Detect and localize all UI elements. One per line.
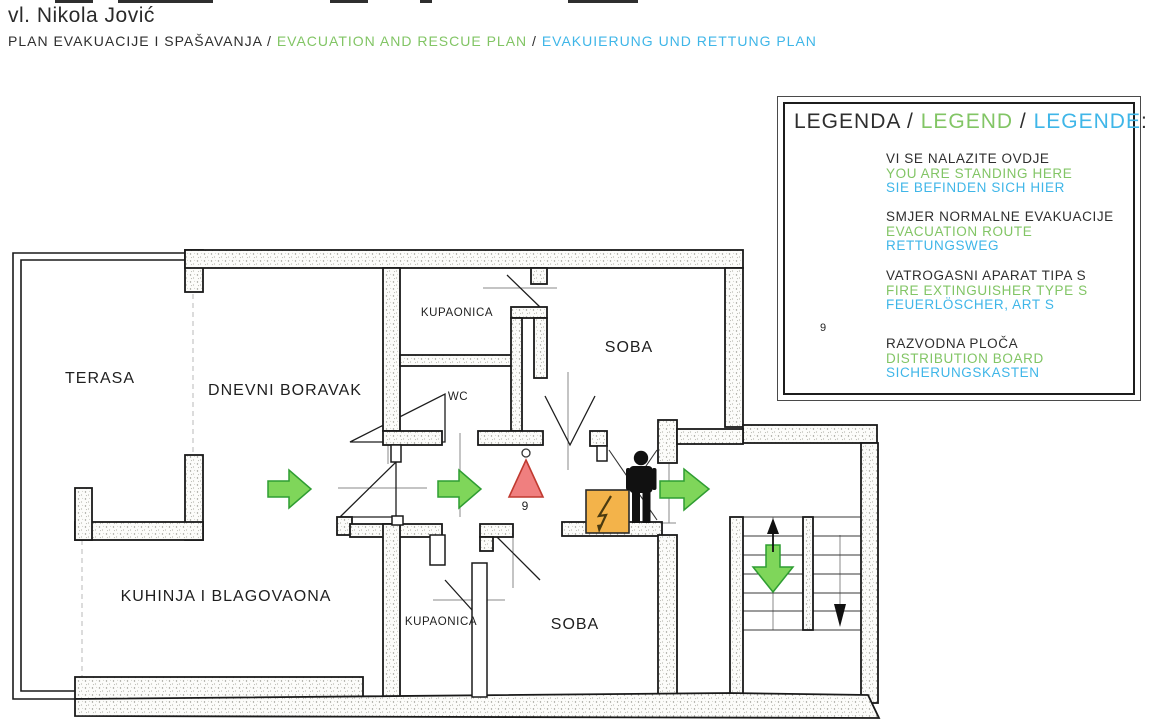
legend-item-de: RETTUNGSWEG (886, 239, 1136, 254)
door-swing-living (340, 462, 396, 517)
legend-item-de: SIE BEFINDEN SICH HIER (886, 181, 1136, 196)
evacuation-arrow-1 (268, 470, 311, 508)
door-swings (340, 275, 595, 620)
legend-item-en: DISTRIBUTION BOARD (886, 352, 1136, 367)
legend-box: LEGENDA / LEGEND / LEGENDE: VI SE NALAZI… (777, 96, 1141, 401)
room-label-kupaonica-bottom: KUPAONICA (405, 616, 477, 628)
legend-item-en: EVACUATION ROUTE (886, 225, 1136, 240)
evacuation-plan-page: vl. Nikola Jović PLAN EVAKUACIJE I SPAŠA… (0, 0, 1152, 720)
room-label-dnevni-boravak: DNEVNI BORAVAK (208, 382, 362, 400)
extinguisher-number: 9 (522, 499, 529, 513)
legend-extinguisher-number: 9 (820, 322, 826, 334)
legend-item-hr: VATROGASNI APARAT TIPA S (886, 269, 1136, 284)
legend-title-en: LEGEND (921, 110, 1013, 133)
room-label-kupaonica-top: KUPAONICA (421, 307, 493, 319)
legend-item-evacuation-route: SMJER NORMALNE EVAKUACIJE EVACUATION ROU… (886, 210, 1136, 254)
dashed-floor-lines (82, 294, 193, 677)
legend-item-fire-extinguisher: VATROGASNI APARAT TIPA S FIRE EXTINGUISH… (886, 269, 1136, 313)
legend-title-hr: LEGENDA (794, 110, 900, 133)
door-swing-soba-bottom (493, 533, 540, 580)
door-swing-soba-top (545, 396, 595, 445)
partition-walls (391, 445, 607, 697)
legend-item-de: FEUERLÖSCHER, ART S (886, 298, 1136, 313)
legend-title-sep: / (1013, 110, 1034, 133)
fire-extinguisher-marker (509, 449, 543, 497)
legend-title-de: LEGENDE (1034, 110, 1141, 133)
room-label-kuhinja: KUHINJA I BLAGOVAONA (121, 588, 332, 606)
distribution-board-marker (586, 490, 629, 533)
evacuation-arrow-exit (660, 469, 709, 510)
evacuation-arrow-2 (438, 470, 481, 508)
room-label-soba-bottom: SOBA (551, 616, 599, 634)
legend-item-distribution-board: RAZVODNA PLOČA DISTRIBUTION BOARD SICHER… (886, 337, 1136, 381)
legend-item-hr: RAZVODNA PLOČA (886, 337, 1136, 352)
legend-item-hr: VI SE NALAZITE OVDJE (886, 152, 1136, 167)
legend-title: LEGENDA / LEGEND / LEGENDE: (794, 110, 1148, 134)
legend-title-colon: : (1141, 110, 1148, 133)
room-label-wc: WC (448, 391, 468, 403)
legend-title-sep: / (900, 110, 921, 133)
legend-item-you-are-here: VI SE NALAZITE OVDJE YOU ARE STANDING HE… (886, 152, 1136, 196)
stairs-down-arrow-icon (834, 604, 846, 627)
legend-item-en: FIRE EXTINGUISHER TYPE S (886, 284, 1136, 299)
legend-item-hr: SMJER NORMALNE EVAKUACIJE (886, 210, 1136, 225)
room-label-soba-top: SOBA (605, 339, 653, 357)
stairs-up-arrow-icon (767, 518, 779, 534)
legend-item-en: YOU ARE STANDING HERE (886, 167, 1136, 182)
terrace-walls (13, 253, 185, 699)
legend-item-de: SICHERUNGSKASTEN (886, 366, 1136, 381)
evacuation-arrow-stairs-down (753, 545, 793, 592)
room-label-terasa: TERASA (65, 370, 135, 388)
